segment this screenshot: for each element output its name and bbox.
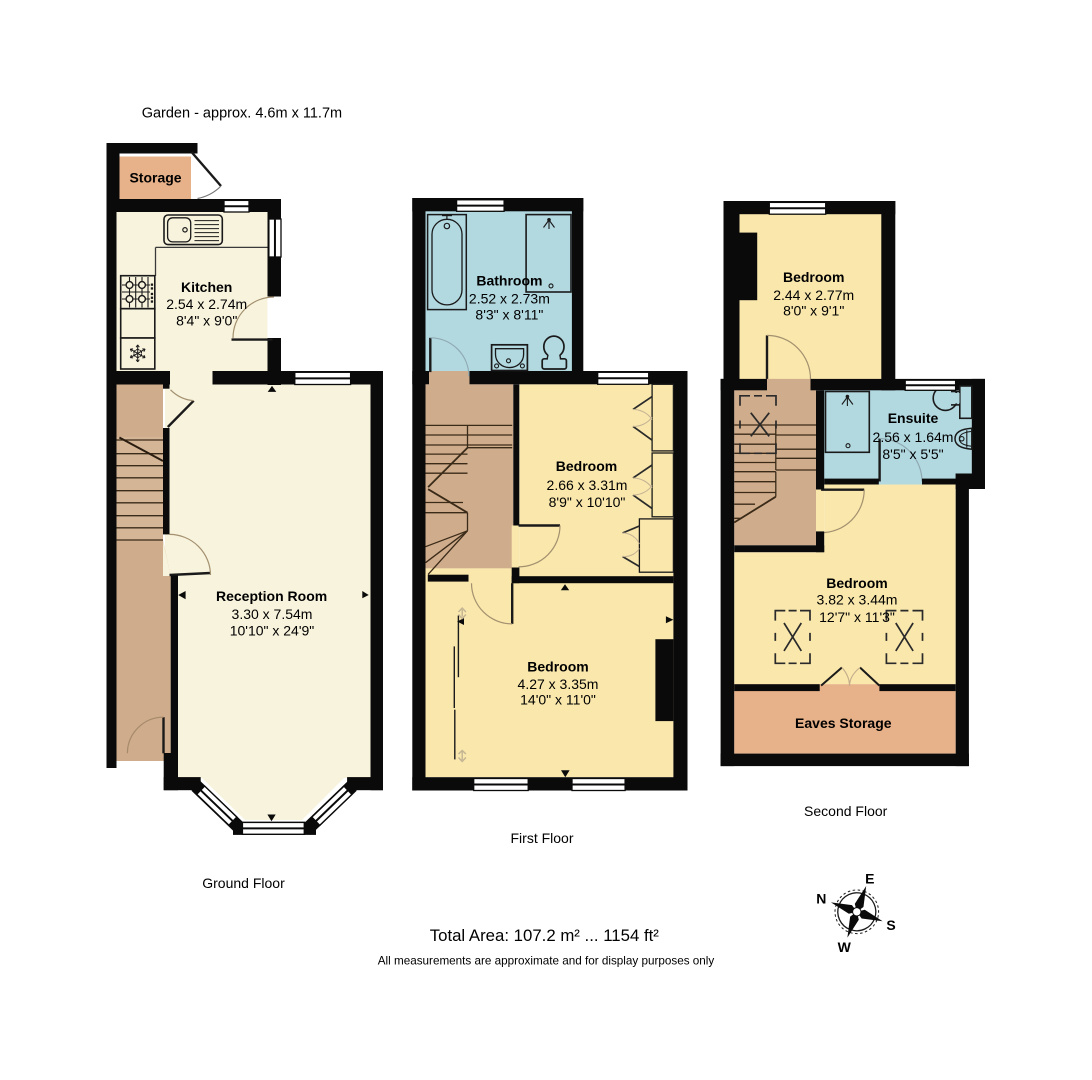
svg-text:Ensuite: Ensuite bbox=[888, 410, 939, 426]
svg-text:S: S bbox=[886, 917, 895, 933]
svg-text:2.56 x 1.64m: 2.56 x 1.64m bbox=[873, 429, 954, 445]
svg-text:Bedroom: Bedroom bbox=[783, 269, 844, 285]
svg-text:8'0" x 9'1": 8'0" x 9'1" bbox=[783, 303, 844, 319]
svg-text:Bedroom: Bedroom bbox=[826, 575, 887, 591]
svg-text:3.82 x 3.44m: 3.82 x 3.44m bbox=[817, 592, 898, 608]
svg-text:Reception Room: Reception Room bbox=[216, 588, 327, 604]
svg-text:12'7" x 11'3": 12'7" x 11'3" bbox=[819, 609, 895, 625]
svg-text:Storage: Storage bbox=[129, 170, 181, 186]
svg-text:Kitchen: Kitchen bbox=[181, 279, 232, 295]
svg-text:2.52 x 2.73m: 2.52 x 2.73m bbox=[469, 291, 550, 307]
svg-text:All measurements are approxima: All measurements are approximate and for… bbox=[378, 955, 715, 968]
svg-text:10'10" x 24'9": 10'10" x 24'9" bbox=[230, 623, 315, 639]
svg-text:8'5" x 5'5": 8'5" x 5'5" bbox=[882, 446, 943, 462]
svg-text:Total Area: 107.2 m² ... 1154: Total Area: 107.2 m² ... 1154 ft² bbox=[430, 926, 660, 945]
svg-text:3.30 x 7.54m: 3.30 x 7.54m bbox=[232, 606, 313, 622]
svg-text:4.27 x 3.35m: 4.27 x 3.35m bbox=[518, 676, 599, 692]
svg-text:Bedroom: Bedroom bbox=[556, 458, 617, 474]
svg-text:2.54 x 2.74m: 2.54 x 2.74m bbox=[166, 296, 247, 312]
svg-text:Ground Floor: Ground Floor bbox=[202, 875, 285, 891]
svg-text:N: N bbox=[816, 890, 826, 906]
svg-text:W: W bbox=[838, 939, 852, 955]
svg-text:8'3" x 8'11": 8'3" x 8'11" bbox=[475, 307, 543, 323]
svg-text:2.44 x 2.77m: 2.44 x 2.77m bbox=[773, 287, 854, 303]
svg-text:First Floor: First Floor bbox=[511, 830, 574, 846]
svg-text:8'4" x 9'0": 8'4" x 9'0" bbox=[176, 313, 237, 329]
svg-text:E: E bbox=[865, 871, 874, 887]
svg-text:2.66 x 3.31m: 2.66 x 3.31m bbox=[547, 477, 628, 493]
svg-text:Garden - approx. 4.6m x 11.7m: Garden - approx. 4.6m x 11.7m bbox=[142, 106, 342, 122]
svg-text:Bathroom: Bathroom bbox=[476, 273, 542, 289]
svg-text:14'0" x 11'0": 14'0" x 11'0" bbox=[520, 692, 596, 708]
svg-text:Bedroom: Bedroom bbox=[527, 659, 588, 675]
svg-text:Eaves Storage: Eaves Storage bbox=[795, 715, 892, 731]
svg-text:8'9" x 10'10": 8'9" x 10'10" bbox=[549, 494, 626, 510]
svg-text:Second Floor: Second Floor bbox=[804, 803, 888, 819]
